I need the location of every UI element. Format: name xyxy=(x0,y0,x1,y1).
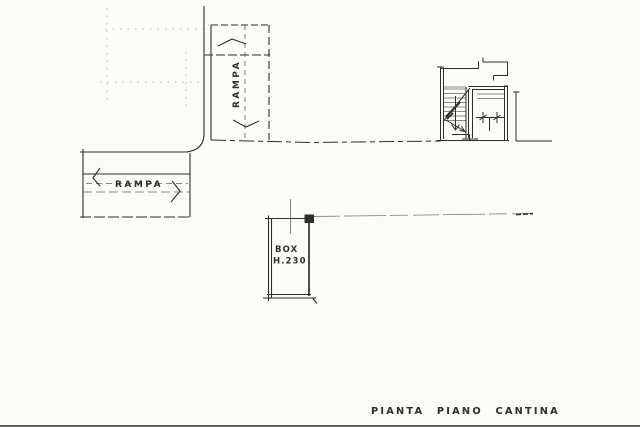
box-height-label: H.230 xyxy=(273,257,307,267)
stairwell xyxy=(437,58,552,142)
box-boundary-line xyxy=(314,214,533,217)
stair-direction-arrow xyxy=(446,102,460,117)
corridor-wall-line xyxy=(211,140,441,143)
vertical-ramp-label: RAMPA xyxy=(232,60,242,108)
ramp-up-arrow xyxy=(218,39,246,46)
ramp-down-arrow xyxy=(233,120,259,127)
vertical-ramp: RAMPA xyxy=(186,6,270,152)
column-pillar xyxy=(305,215,315,224)
plan-title: PIANTA PIANO CANTINA xyxy=(371,406,560,417)
horizontal-ramp-label: RAMPA xyxy=(115,180,163,190)
box-label: BOX xyxy=(275,245,298,255)
floor-plan-sheet: RAMPA RAMPA xyxy=(0,0,640,427)
construction-guide-lines xyxy=(100,8,206,112)
garage-box: BOX H.230 xyxy=(263,199,533,304)
corridor-bend-wall xyxy=(186,6,204,152)
right-wall-stub xyxy=(513,92,552,141)
landing-dimension-ticks xyxy=(476,112,504,131)
horizontal-ramp: RAMPA xyxy=(80,149,192,218)
floor-plan-drawing: RAMPA RAMPA xyxy=(0,0,640,427)
